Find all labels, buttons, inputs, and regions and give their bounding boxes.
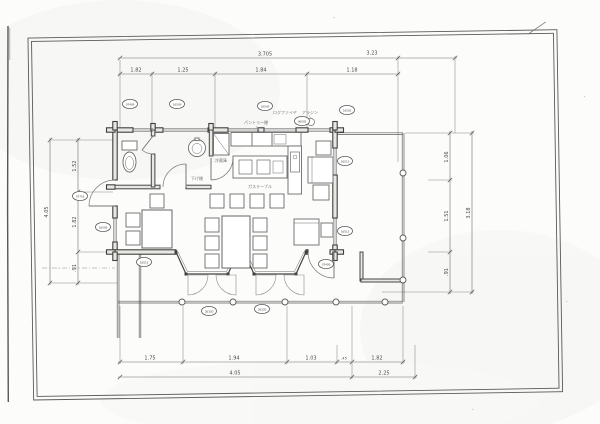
dining-table-set bbox=[205, 216, 267, 268]
svg-text:06005: 06005 bbox=[298, 119, 307, 123]
svg-text:16505: 16505 bbox=[343, 108, 352, 112]
dim-left-overall: 4.05 bbox=[44, 206, 50, 217]
svg-text:16513: 16513 bbox=[341, 159, 350, 163]
dim-right-seg1: 1.06 bbox=[444, 151, 450, 162]
window-symbol: 16505 bbox=[340, 105, 355, 114]
window-symbol: 16509 bbox=[96, 222, 111, 231]
window-symbol: 06005 bbox=[295, 116, 310, 125]
dim-bottom-overall-left: 4.05 bbox=[229, 371, 240, 377]
label-pantry-shelf: パントリー棚 bbox=[244, 119, 268, 125]
window-symbol: 16509 bbox=[170, 99, 185, 108]
dim-top-seg1: 1.82 bbox=[130, 68, 141, 74]
dim-right-seg3: .91 bbox=[444, 268, 450, 276]
window-symbol: 07718 bbox=[73, 191, 88, 200]
dim-left-labels: 1.52 1.82 .91 4.05 bbox=[44, 160, 78, 272]
dim-right-seg2: 1.51 bbox=[444, 210, 450, 221]
svg-text:26320: 26320 bbox=[258, 307, 267, 311]
scanned-sheet: 3.705 3.23 1.82 1.25 1.84 1.18 1.75 1.94… bbox=[0, 0, 600, 424]
label-aladdin-stove: アラジン bbox=[302, 109, 318, 115]
dim-top-seg3: 1.84 bbox=[255, 68, 266, 74]
dim-bottom-seg1: 1.75 bbox=[144, 356, 155, 362]
window-symbol: 16013 bbox=[137, 257, 152, 266]
window-symbol: 26320 bbox=[202, 306, 217, 315]
window-symbol: 16513 bbox=[338, 156, 353, 165]
window-symbol: 16509 bbox=[258, 101, 273, 110]
toilet-fixture bbox=[122, 141, 137, 172]
dim-top-overall-right: 3.23 bbox=[366, 51, 377, 57]
label-gas-table: ガステーブル bbox=[248, 183, 272, 189]
dim-right-overall: 3.18 bbox=[466, 207, 472, 218]
svg-text:16509: 16509 bbox=[261, 104, 270, 108]
armchair-group-top bbox=[308, 141, 333, 200]
svg-text:16509: 16509 bbox=[173, 102, 182, 106]
window-symbol: 07409 bbox=[123, 99, 138, 108]
svg-text:26320: 26320 bbox=[205, 309, 214, 313]
front-door bbox=[89, 180, 115, 206]
dim-bottom-seg5: 1.82 bbox=[371, 356, 382, 362]
paper-texture bbox=[0, 0, 600, 424]
label-lower-shelf: 下げ棚 bbox=[191, 175, 203, 181]
casement-swings bbox=[188, 275, 304, 295]
refrigerator-box bbox=[214, 134, 230, 156]
svg-text:07718: 07718 bbox=[76, 194, 85, 198]
corner-pen-mark bbox=[528, 22, 546, 34]
dim-left-seg1: 1.52 bbox=[72, 160, 78, 171]
window-symbol: 07409 bbox=[319, 259, 334, 268]
side-table-set bbox=[126, 194, 172, 248]
floor-plan-drawing: 3.705 3.23 1.82 1.25 1.84 1.18 1.75 1.94… bbox=[0, 0, 600, 424]
counter-stools bbox=[210, 194, 284, 208]
svg-text:16013: 16013 bbox=[140, 260, 149, 264]
dim-top-seg2: 1.25 bbox=[177, 68, 188, 74]
dim-bottom-seg4: .45 bbox=[341, 357, 347, 361]
window-symbol: 16513 bbox=[338, 226, 353, 235]
dim-bottom-seg3: 1.03 bbox=[305, 356, 316, 362]
label-log-fire: ログファイヤ bbox=[273, 109, 297, 115]
label-refrigerator: 冷蔵庫 bbox=[215, 157, 227, 163]
dim-left-seg2: 1.82 bbox=[72, 216, 78, 227]
armchair-group-bottom bbox=[294, 219, 333, 245]
dim-bottom-overall-right: 2.25 bbox=[378, 371, 389, 377]
svg-text:07409: 07409 bbox=[126, 102, 135, 106]
svg-text:16513: 16513 bbox=[341, 229, 350, 233]
svg-text:16509: 16509 bbox=[99, 225, 108, 229]
window-symbol: 26320 bbox=[255, 304, 270, 313]
dim-bottom-seg2: 1.94 bbox=[228, 356, 239, 362]
svg-text:07409: 07409 bbox=[322, 262, 331, 266]
dim-top-overall-left: 3.705 bbox=[258, 52, 272, 58]
kitchen-island bbox=[233, 156, 287, 178]
dim-top-seg4: 1.18 bbox=[346, 68, 357, 74]
